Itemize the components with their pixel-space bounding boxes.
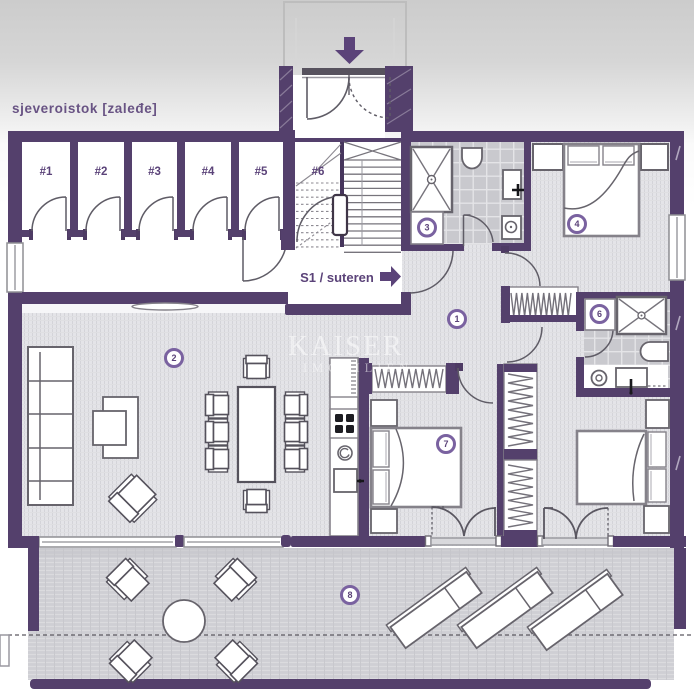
svg-text:3: 3 [424, 223, 429, 233]
svg-text:#2: #2 [95, 166, 108, 178]
svg-text:S1 / suteren: S1 / suteren [300, 270, 374, 285]
svg-text:KAISER: KAISER [288, 331, 404, 362]
svg-text:#5: #5 [255, 166, 268, 178]
svg-text:#6: #6 [312, 166, 325, 178]
svg-text:#1: #1 [40, 166, 53, 178]
svg-text:sjeveroistok [zaleđe]: sjeveroistok [zaleđe] [12, 101, 157, 116]
svg-text:7: 7 [443, 439, 448, 449]
svg-text:4: 4 [574, 219, 579, 229]
svg-text:8: 8 [347, 590, 352, 600]
svg-text:2: 2 [171, 353, 176, 363]
svg-text:1: 1 [454, 314, 459, 324]
svg-text:6: 6 [597, 309, 602, 319]
svg-text:IMOBILIEN: IMOBILIEN [303, 361, 413, 375]
svg-text:#4: #4 [202, 166, 215, 178]
svg-text:#3: #3 [148, 166, 161, 178]
